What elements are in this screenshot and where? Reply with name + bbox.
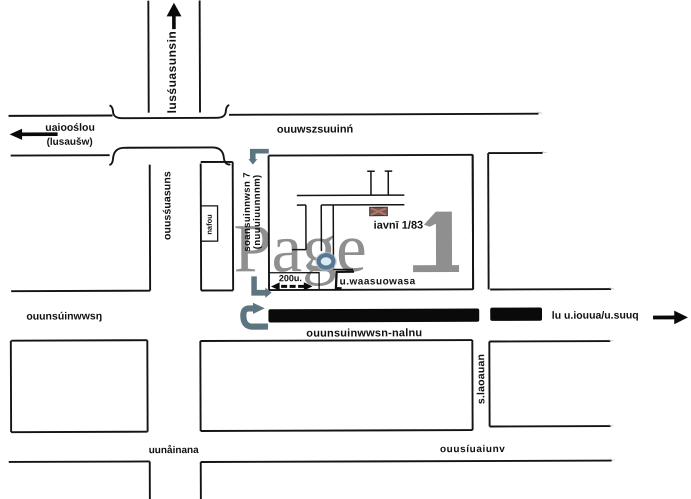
svg-text:ouusíuaiunv: ouusíuaiunv xyxy=(440,444,506,455)
svg-text:nafou: nafou xyxy=(205,214,214,235)
svg-text:iavnī 1/83: iavnī 1/83 xyxy=(374,220,424,232)
svg-text:ouunsuinwwsn-nalnu: ouunsuinwwsn-nalnu xyxy=(306,327,422,339)
svg-text:lu u.iouua/u.suuq: lu u.iouua/u.suuq xyxy=(552,309,639,321)
svg-text:ouusśuasuns: ouusśuasuns xyxy=(161,171,173,240)
svg-text:(lusaušw): (lusaušw) xyxy=(47,137,93,148)
svg-text:uaiooślou: uaiooślou xyxy=(45,122,95,134)
svg-text:ouunsúinwwsŋ: ouunsúinwwsŋ xyxy=(26,310,102,322)
svg-text:(nuuuiuunnnm): (nuuuiuunnnm) xyxy=(252,174,263,249)
svg-text:uunåinana: uunåinana xyxy=(149,444,199,456)
svg-text:lusśuasunsin: lusśuasunsin xyxy=(165,31,179,114)
svg-text:200u.: 200u. xyxy=(279,273,302,283)
svg-text:u.waasuowasa: u.waasuowasa xyxy=(340,276,416,287)
svg-text:s.laoauan: s.laoauan xyxy=(475,354,487,404)
svg-text:ouuwszsuuinń: ouuwszsuuinń xyxy=(277,123,354,135)
